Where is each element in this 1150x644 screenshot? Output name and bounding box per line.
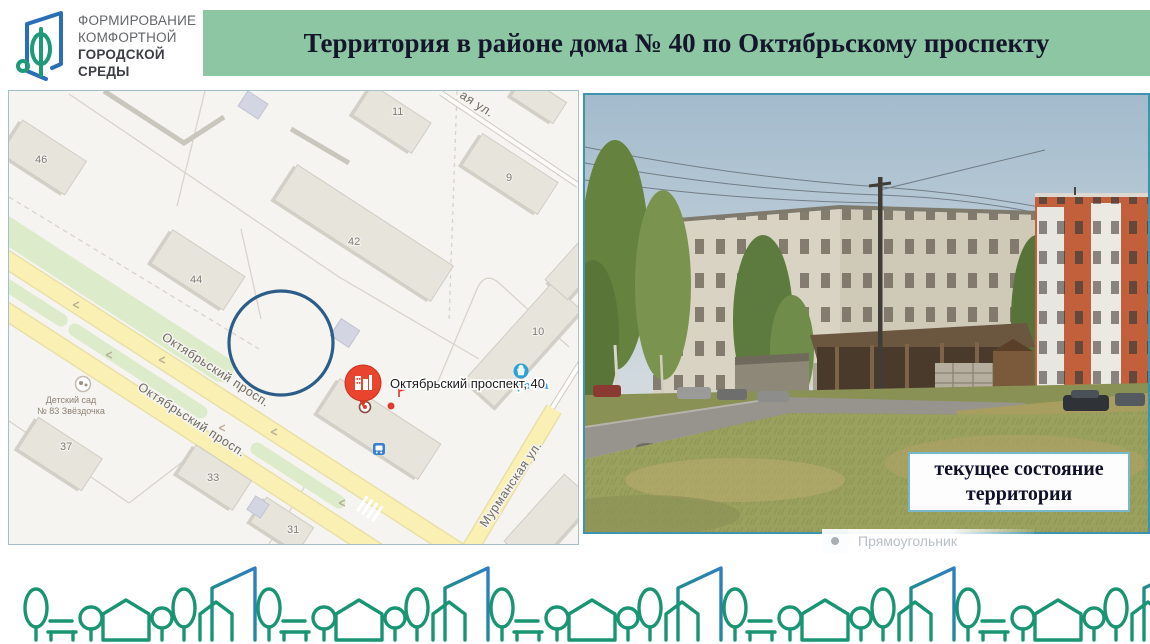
bus-stop-icon xyxy=(373,443,385,455)
shape-name-overlay[interactable]: Прямоугольник xyxy=(822,529,1034,553)
logo-line1: ФОРМИРОВАНИЕ xyxy=(78,12,210,29)
map-drawing: 46 44 42 11 9 10 37 33 31 Октябрьский пр… xyxy=(9,91,578,544)
bldg-9: 9 xyxy=(506,172,512,184)
caption-line1: текущее состояние xyxy=(934,457,1103,482)
bldg-33: 33 xyxy=(207,472,219,484)
bldg-10: 10 xyxy=(532,326,544,338)
map-pin-label: Октябрьский проспект, 40 xyxy=(390,376,545,391)
bldg-42: 42 xyxy=(348,236,360,248)
slide-title: Территория в районе дома № 40 по Октябрь… xyxy=(304,28,1050,59)
logo-line2: КОМФОРТНОЙ xyxy=(78,29,210,46)
skyline-border xyxy=(0,562,1150,644)
territory-photo[interactable]: текущее состояние территории xyxy=(583,93,1150,534)
kindergarten-label-1: Детский сад xyxy=(46,395,97,405)
photo-caption: текущее состояние территории xyxy=(908,452,1130,512)
bldg-37: 37 xyxy=(60,441,72,453)
caption-line2: территории xyxy=(966,482,1072,507)
slide-title-banner: Территория в районе дома № 40 по Октябрь… xyxy=(203,10,1150,76)
logo-line3: ГОРОДСКОЙ СРЕДЫ xyxy=(78,46,210,80)
slide-canvas: { "logo": { "line1": "ФОРМИРОВАНИЕ", "li… xyxy=(0,0,1150,644)
logo-book-leaf-icon xyxy=(10,9,72,83)
bullet-dot-icon xyxy=(822,529,848,553)
shape-name-text: Прямоугольник xyxy=(848,529,1034,553)
kindergarten-label-2: № 83 Звёздочка xyxy=(37,406,105,416)
bldg-44: 44 xyxy=(190,274,202,286)
bldg-11: 11 xyxy=(392,106,403,118)
bldg-46: 46 xyxy=(35,154,47,166)
map-image[interactable]: 46 44 42 11 9 10 37 33 31 Октябрьский пр… xyxy=(8,90,579,545)
program-logo: ФОРМИРОВАНИЕ КОМФОРТНОЙ ГОРОДСКОЙ СРЕДЫ xyxy=(10,6,210,86)
bldg-31: 31 xyxy=(287,524,299,536)
